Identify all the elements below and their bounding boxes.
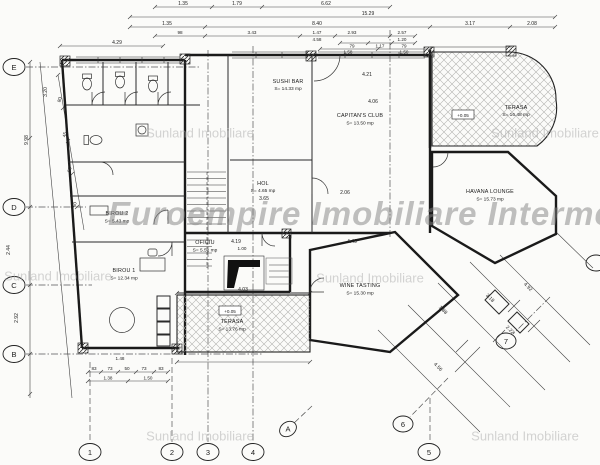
room-area-capitans-club: S= 13.50 mp — [346, 121, 374, 127]
dim-label: 2.44 — [6, 245, 12, 255]
room-area-terasa-top: S= 16.48 mp — [502, 112, 530, 118]
floor-plan-drawing: E D C B 1 2 3 4 5 6 7 A — [0, 0, 600, 465]
dim-label: 79 — [401, 44, 407, 49]
terrace-bottom-hatch — [177, 295, 310, 352]
dim-label: 1.35 — [178, 1, 188, 7]
dimension-lines-left — [28, 60, 84, 398]
grid-marker-6: 6 — [401, 420, 405, 429]
dim-label: 79 — [349, 44, 355, 49]
dim-label: 4.49 — [347, 239, 357, 245]
room-area-birou-1: S= 12.34 mp — [110, 276, 138, 282]
dim-label: 1.20 — [398, 37, 407, 42]
grid-marker-1: 1 — [88, 448, 92, 457]
grid-marker-2: 2 — [170, 448, 174, 457]
dim-label: 4.06 — [368, 99, 378, 105]
dim-label: 3.18 — [484, 293, 495, 304]
room-label-hol: HOL — [257, 181, 269, 187]
room-label-sushi-bar: SUSHI BAR — [273, 79, 304, 85]
room-area-hol: S= 4.65 mp — [251, 188, 276, 194]
dim-label: 2.57 — [398, 30, 407, 35]
chimney-element — [224, 256, 292, 290]
room-label-havana-lounge: HAVANA LOUNGE — [466, 189, 514, 195]
dim-label: 1.79 — [232, 1, 242, 7]
dim-label: 3.43 — [248, 30, 257, 35]
elevation-terrace-top: +0.05 — [457, 113, 469, 118]
room-area-oficiu: S= 5.52 mp — [193, 248, 218, 254]
room-label-capitans-club: CAPITAN'S CLUB — [337, 113, 383, 119]
dimension-lines-top — [58, 5, 557, 55]
dim-label: 8.40 — [312, 21, 322, 27]
dim-label: 1.50 — [144, 376, 153, 381]
dim-label: 2.08 — [527, 21, 537, 27]
room-label-wine-tasting: WINE TASTING — [340, 283, 381, 289]
elevation-terrace-bottom: +0.05 — [224, 309, 236, 314]
grid-marker-5: 5 — [427, 448, 431, 457]
dim-label: 4.19 — [231, 239, 241, 245]
dim-label: 83 — [91, 366, 97, 371]
dim-label: 15.29 — [362, 11, 375, 17]
grid-marker-7: 7 — [504, 337, 508, 346]
dim-label: 1.47 — [313, 30, 322, 35]
dim-label: 2.06 — [340, 190, 350, 196]
dim-label: 50 — [124, 366, 130, 371]
dim-label: 1.17 — [376, 44, 385, 49]
grid-marker-D: D — [11, 203, 17, 212]
grid-marker-E: E — [11, 63, 16, 72]
dim-label: 1.38 — [104, 376, 113, 381]
chair — [148, 249, 157, 256]
grid-marker-A: A — [285, 425, 290, 434]
terrace-top-hatch — [432, 52, 557, 146]
dim-label: 4.58 — [313, 37, 322, 42]
dim-label: 4.56 — [432, 362, 443, 373]
room-area-havana-lounge: S= 15.73 mp — [476, 197, 504, 203]
stairs — [187, 172, 226, 268]
round-table — [110, 308, 135, 333]
grid-marker-3: 3 — [206, 448, 210, 457]
dim-label: 4.92 — [522, 282, 533, 293]
dim-label: 83 — [158, 366, 164, 371]
room-area-wine-tasting: S= 15.30 mp — [346, 291, 374, 297]
dim-label: 2.93 — [348, 30, 357, 35]
dim-label: 98 — [177, 30, 183, 35]
grid-marker-4: 4 — [251, 448, 255, 457]
dim-label: 50 — [66, 166, 72, 173]
room-area-terasa-bottom: S= 13.76 mp — [218, 327, 246, 333]
room-label-birou-2: BIROU 2 — [106, 211, 129, 217]
sanitary-fixtures — [83, 72, 158, 145]
dim-label: 6.62 — [321, 1, 331, 7]
room-label-terasa-bottom: TERASA — [221, 319, 244, 325]
dim-label: 73 — [107, 366, 113, 371]
dim-label: 3.65 — [259, 196, 269, 202]
dim-label: 1.50 — [400, 50, 409, 55]
dim-label: 1.48 — [116, 356, 125, 361]
dim-label: 73 — [141, 366, 147, 371]
room-label-terasa-top: TERASA — [505, 105, 528, 111]
grid-marker-C: C — [11, 281, 17, 290]
dim-label: 2.92 — [14, 313, 20, 323]
dim-label: 3.17 — [465, 21, 475, 27]
dim-label: 4.29 — [112, 40, 122, 46]
room-label-oficiu: OFICIU — [195, 240, 214, 246]
dim-label: 1.88 — [437, 305, 448, 316]
dim-label: 1.00 — [238, 246, 247, 251]
dim-label: 9.98 — [24, 135, 30, 145]
dim-label: 1.35 — [162, 21, 172, 27]
grid-marker-B: B — [11, 350, 16, 359]
room-area-birou-2: S= 5.43 mp — [105, 219, 130, 225]
dimension-lines-diagonal — [378, 232, 593, 432]
dim-label: 3.20 — [43, 87, 49, 97]
room-label-birou-1: BIROU 1 — [113, 268, 136, 274]
dim-label: 4.21 — [362, 72, 372, 78]
dim-label: 1.58 — [344, 50, 353, 55]
room-area-sushi-bar: S= 14.33 mp — [274, 86, 302, 92]
door-swings — [92, 55, 448, 292]
dim-label: 4.03 — [238, 287, 248, 293]
desk — [140, 258, 165, 271]
floor-plan-page: E D C B 1 2 3 4 5 6 7 A — [0, 0, 600, 465]
